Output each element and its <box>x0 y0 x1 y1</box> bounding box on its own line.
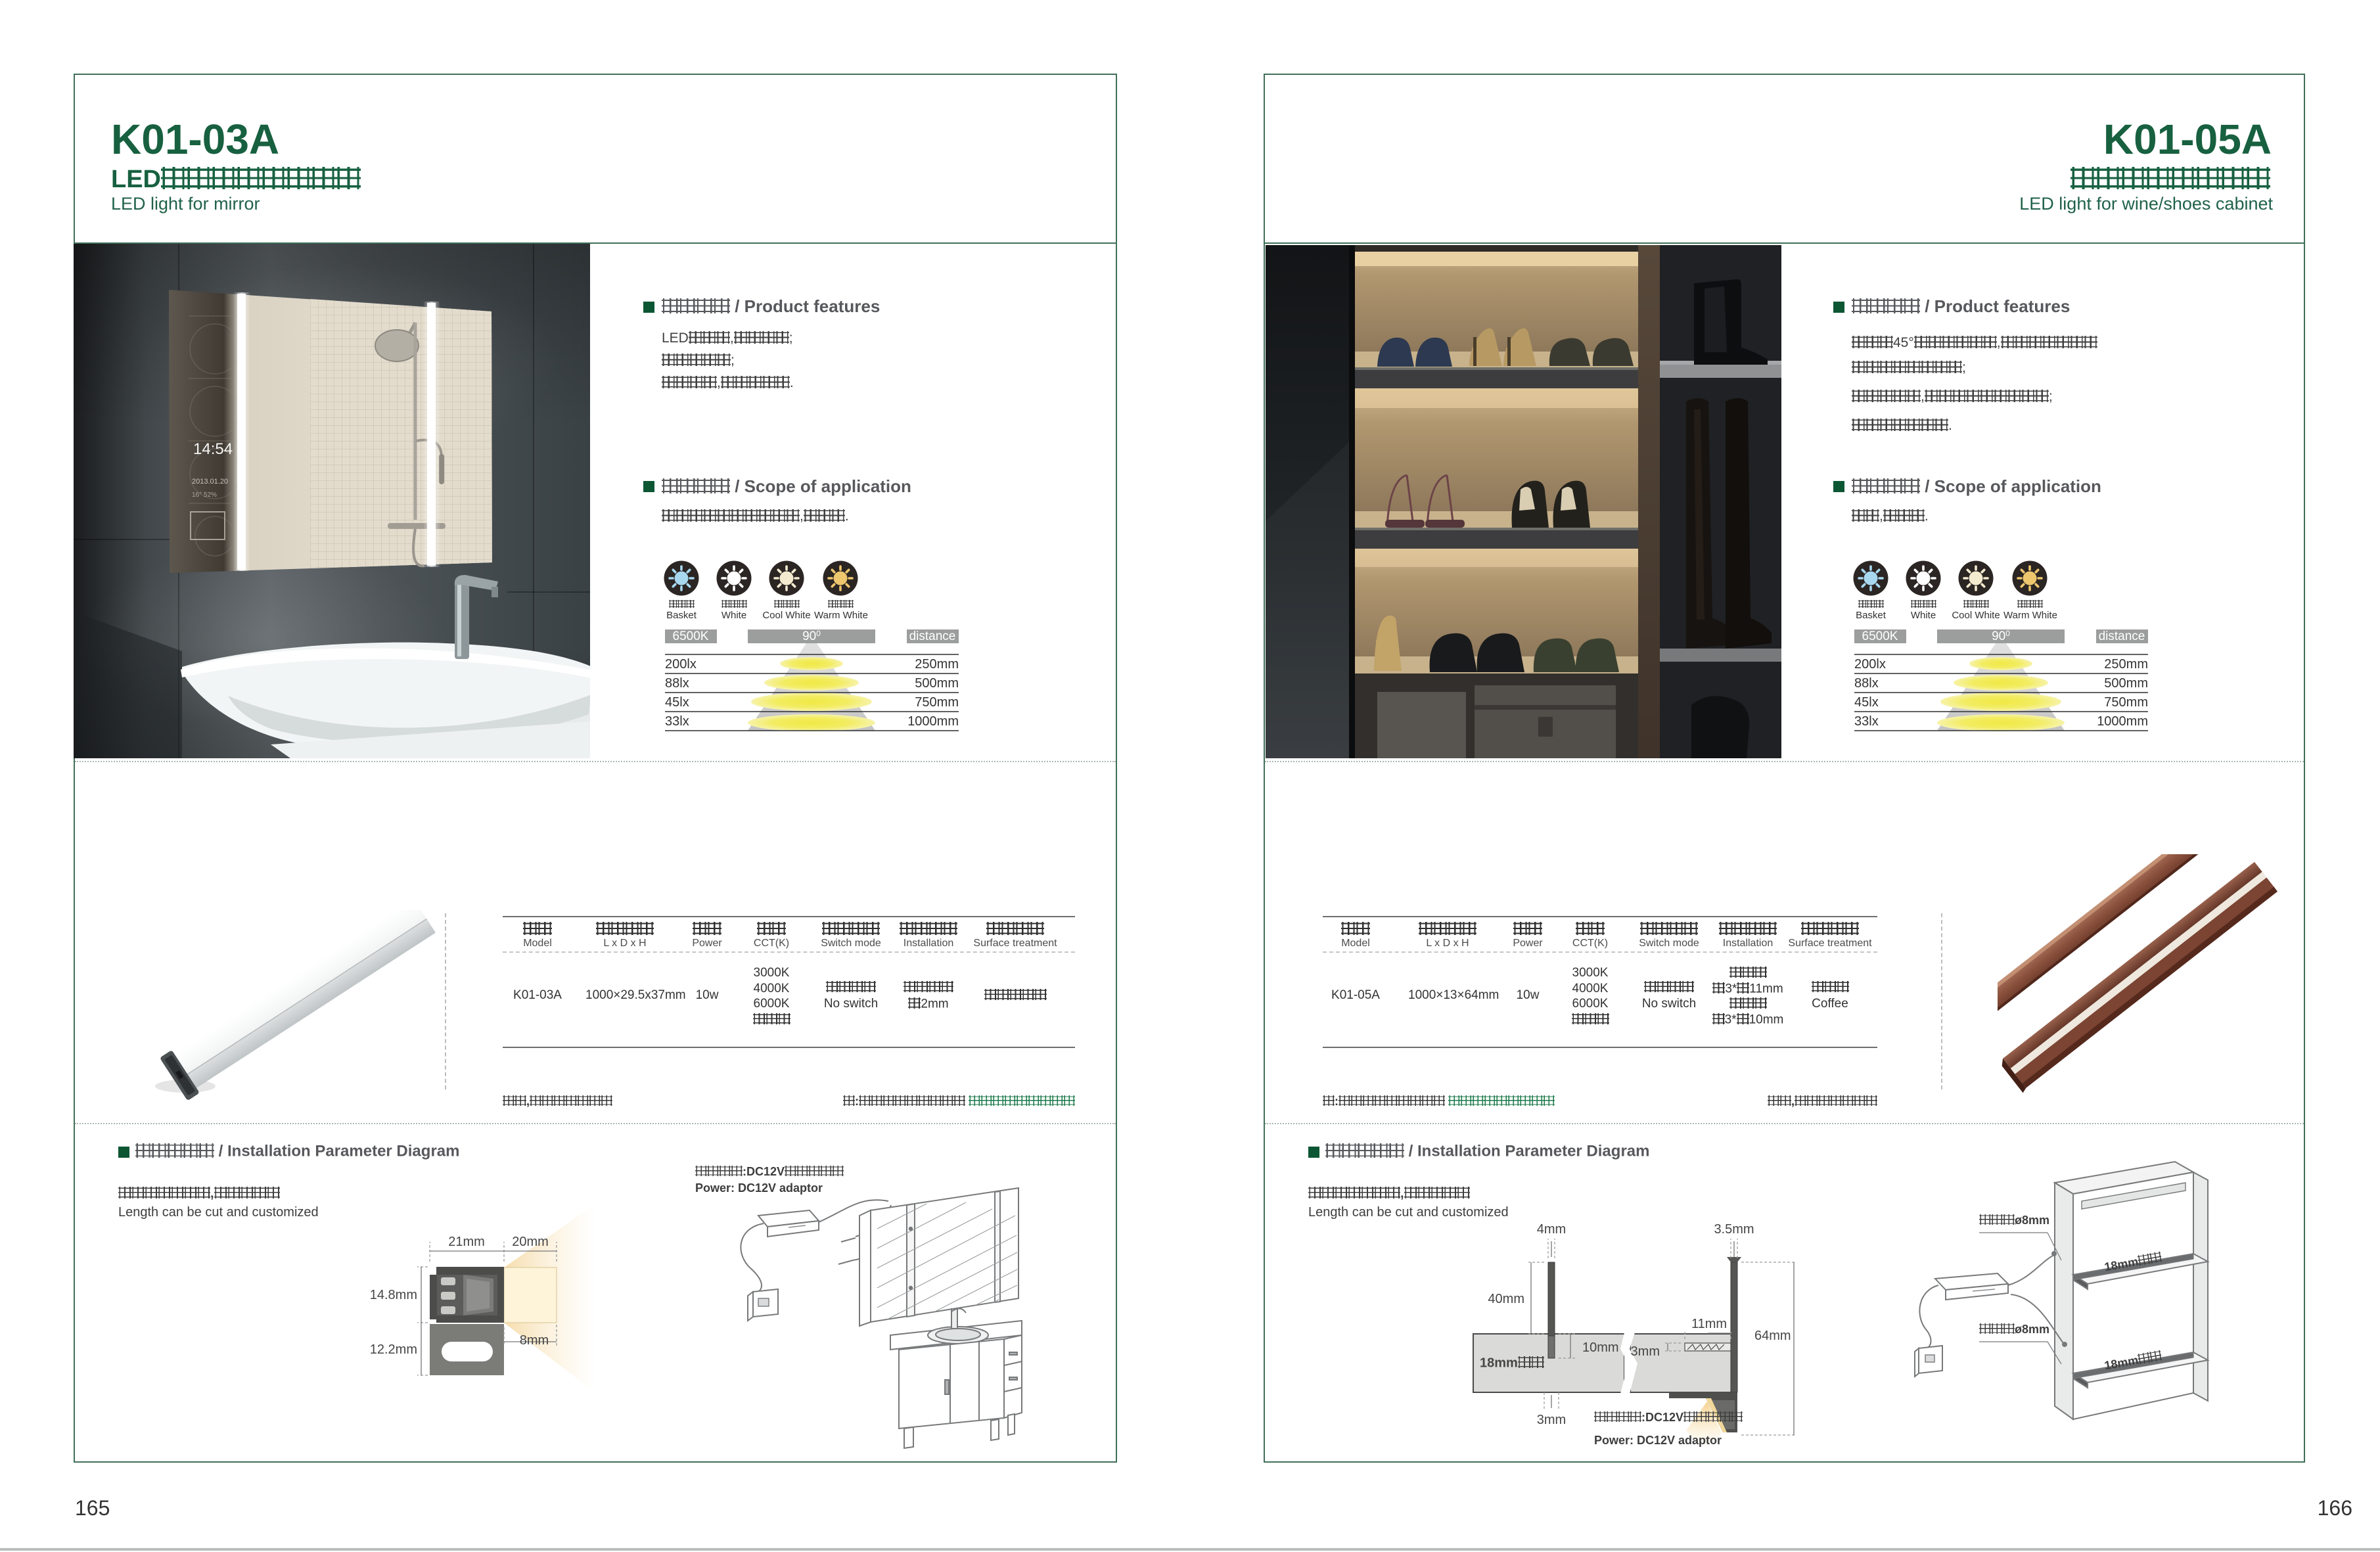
svg-text:2013.01.20: 2013.01.20 <box>192 478 228 486</box>
svg-text:250mm: 250mm <box>915 657 959 672</box>
svg-text:250mm: 250mm <box>2104 657 2148 672</box>
svg-text:11mm: 11mm <box>1691 1317 1727 1331</box>
svg-text:14.8mm: 14.8mm <box>370 1288 417 1302</box>
svg-text:6500K: 6500K <box>673 629 709 643</box>
svg-text:40mm: 40mm <box>1488 1292 1524 1306</box>
svg-text:1000mm: 1000mm <box>2097 714 2148 729</box>
svg-text:4mm: 4mm <box>1537 1222 1566 1237</box>
svg-text:20mm: 20mm <box>512 1235 549 1249</box>
svg-text:6500K: 6500K <box>1862 629 1898 643</box>
svg-text:200lx: 200lx <box>665 657 697 672</box>
svg-text:3mm: 3mm <box>1537 1413 1566 1427</box>
svg-text:88lx: 88lx <box>665 676 689 691</box>
svg-text:500mm: 500mm <box>2104 676 2148 691</box>
svg-text:45lx: 45lx <box>1854 695 1879 710</box>
svg-text:10mm: 10mm <box>1582 1340 1619 1355</box>
svg-text:33lx: 33lx <box>665 714 689 729</box>
svg-text:distance: distance <box>909 629 956 643</box>
svg-text:750mm: 750mm <box>2104 695 2148 710</box>
svg-text:16° 52%: 16° 52% <box>192 491 217 499</box>
svg-text:500mm: 500mm <box>915 676 959 691</box>
svg-text:88lx: 88lx <box>1854 676 1879 691</box>
svg-text:12.2mm: 12.2mm <box>370 1342 417 1357</box>
svg-text:21mm: 21mm <box>448 1235 485 1249</box>
svg-text:8mm: 8mm <box>520 1333 549 1348</box>
svg-text:distance: distance <box>2099 629 2145 643</box>
svg-text:33lx: 33lx <box>1854 714 1879 729</box>
svg-text:200lx: 200lx <box>1854 657 1886 672</box>
svg-text:14:54: 14:54 <box>193 440 233 458</box>
svg-text:45lx: 45lx <box>665 695 689 710</box>
svg-text:1000mm: 1000mm <box>907 714 959 729</box>
svg-text:3.5mm: 3.5mm <box>1714 1222 1754 1237</box>
svg-text:3mm: 3mm <box>1631 1344 1660 1359</box>
svg-text:64mm: 64mm <box>1754 1329 1791 1343</box>
svg-text:750mm: 750mm <box>915 695 959 710</box>
